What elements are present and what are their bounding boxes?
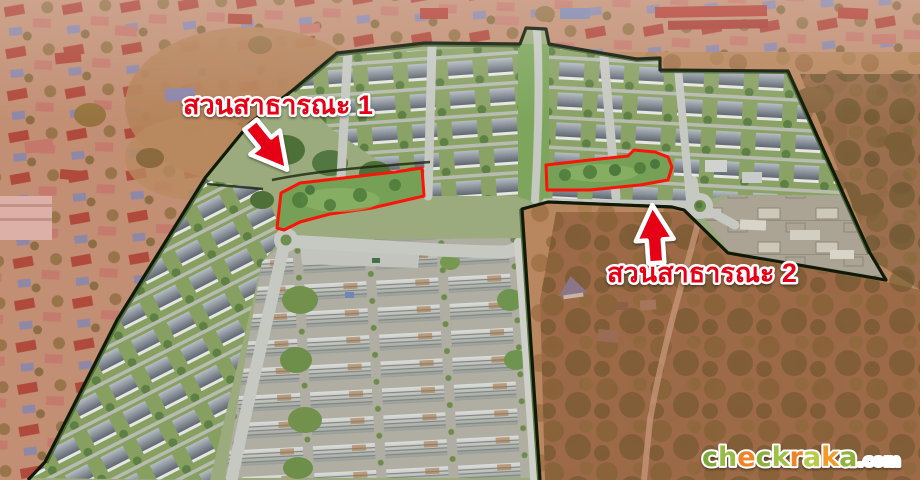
watermark-letter: r xyxy=(790,442,804,473)
watermark-letter: c xyxy=(702,442,718,473)
watermark-letter: a xyxy=(839,442,857,473)
roundabout-west xyxy=(274,228,298,252)
watermark-letter: a xyxy=(803,442,821,473)
park-1-label: สวนสาธารณะ 1 xyxy=(183,90,373,120)
aerial-photo: สวนสาธารณะ 1 สวนสาธารณะ 2 checkraka.com xyxy=(0,0,920,480)
haze-overlay xyxy=(0,0,920,120)
park-2-label: สวนสาธารณะ 2 xyxy=(607,258,797,288)
watermark-letter: h xyxy=(718,442,737,473)
watermark-letter: c xyxy=(756,442,772,473)
watermark-letter: e xyxy=(737,442,755,473)
aerial-scene: สวนสาธารณะ 1 สวนสาธารณะ 2 checkraka.com xyxy=(0,0,920,480)
watermark-letter: k xyxy=(821,442,840,473)
watermark-suffix: .com xyxy=(857,451,900,470)
watermark-letter: k xyxy=(772,442,791,473)
